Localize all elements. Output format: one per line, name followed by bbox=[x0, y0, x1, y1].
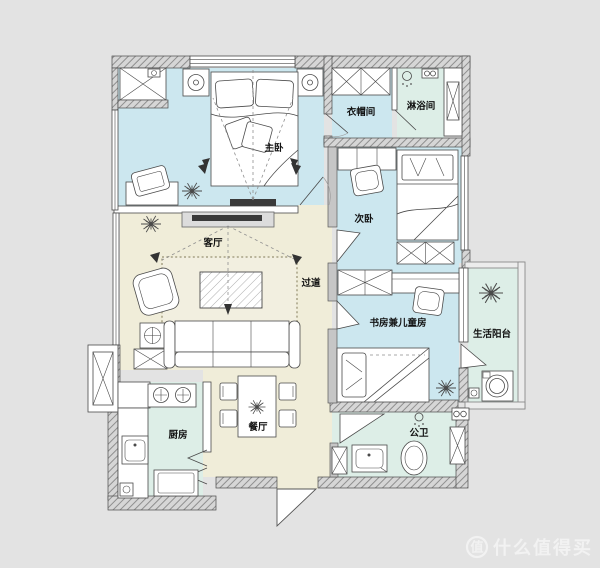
second-bedroom-wardrobe bbox=[397, 242, 454, 264]
balcony-wall-top bbox=[465, 262, 524, 268]
master-tv bbox=[230, 199, 276, 206]
shaft-left bbox=[88, 345, 118, 412]
dining-chair bbox=[220, 383, 237, 400]
room-label-study: 书房兼儿童房 bbox=[369, 317, 426, 329]
room-label-master-bedroom: 主卧 bbox=[264, 142, 284, 154]
balcony-wall-right bbox=[518, 262, 525, 409]
fridge bbox=[154, 470, 198, 496]
dining-chair bbox=[279, 410, 296, 427]
coffee-table bbox=[200, 272, 262, 308]
chair bbox=[350, 165, 384, 197]
room-label-living: 客厅 bbox=[202, 237, 223, 249]
flue-top-left bbox=[118, 68, 168, 108]
room-label-kitchen: 厨房 bbox=[168, 429, 187, 441]
watermark-text: 什么值得买 bbox=[493, 537, 593, 559]
duct-top-right bbox=[444, 68, 462, 136]
single-bed bbox=[337, 348, 429, 402]
bathroom-sink bbox=[352, 445, 387, 472]
shower-partition bbox=[392, 68, 397, 110]
bathroom-cabinet bbox=[332, 447, 347, 474]
room-label-shower: 淋浴间 bbox=[407, 100, 436, 112]
balcony-wall-bottom bbox=[465, 402, 525, 409]
floor-drain bbox=[469, 388, 479, 398]
nightstand-right bbox=[297, 69, 323, 96]
room-label-bathroom: 公卫 bbox=[409, 428, 429, 439]
room-label-dining: 餐厅 bbox=[247, 421, 268, 433]
master-bed bbox=[202, 72, 298, 186]
nightstand-left bbox=[183, 69, 209, 96]
cloakroom-wardrobe bbox=[332, 68, 390, 95]
bathroom-niche-cabinet bbox=[450, 427, 465, 464]
kitchen-counter bbox=[118, 382, 150, 408]
sofa bbox=[164, 321, 300, 368]
living-tv bbox=[192, 215, 262, 221]
kitchen-partition bbox=[203, 382, 211, 452]
side-table-x bbox=[134, 349, 167, 369]
dining-chair bbox=[279, 383, 296, 400]
stove bbox=[148, 384, 196, 407]
room-label-balcony: 生活阳台 bbox=[473, 328, 512, 340]
floor-drain bbox=[120, 483, 133, 496]
water-heater-taps bbox=[452, 408, 469, 420]
floor-plan-canvas: 主卧 衣帽间 淋浴间 次卧 客厅 过道 书房兼儿童房 生活阳台 厨房 餐厅 公卫… bbox=[0, 0, 600, 568]
study-cabinet bbox=[338, 270, 392, 295]
dining-chair bbox=[220, 410, 237, 427]
toilet bbox=[401, 441, 427, 475]
room-label-cloakroom: 衣帽间 bbox=[347, 106, 376, 118]
watermark-badge-char: 值 bbox=[470, 540, 483, 556]
window-master bbox=[190, 56, 295, 67]
desk-chair bbox=[412, 286, 444, 316]
washing-machine bbox=[482, 371, 513, 401]
room-label-second-bedroom: 次卧 bbox=[354, 213, 374, 225]
room-label-hallway: 过道 bbox=[301, 277, 321, 289]
second-bed bbox=[397, 150, 458, 240]
tv-console bbox=[182, 212, 274, 227]
kitchen-sink bbox=[122, 436, 148, 464]
side-table-quatrefoil bbox=[140, 323, 165, 348]
entrance-threshold bbox=[277, 477, 318, 489]
